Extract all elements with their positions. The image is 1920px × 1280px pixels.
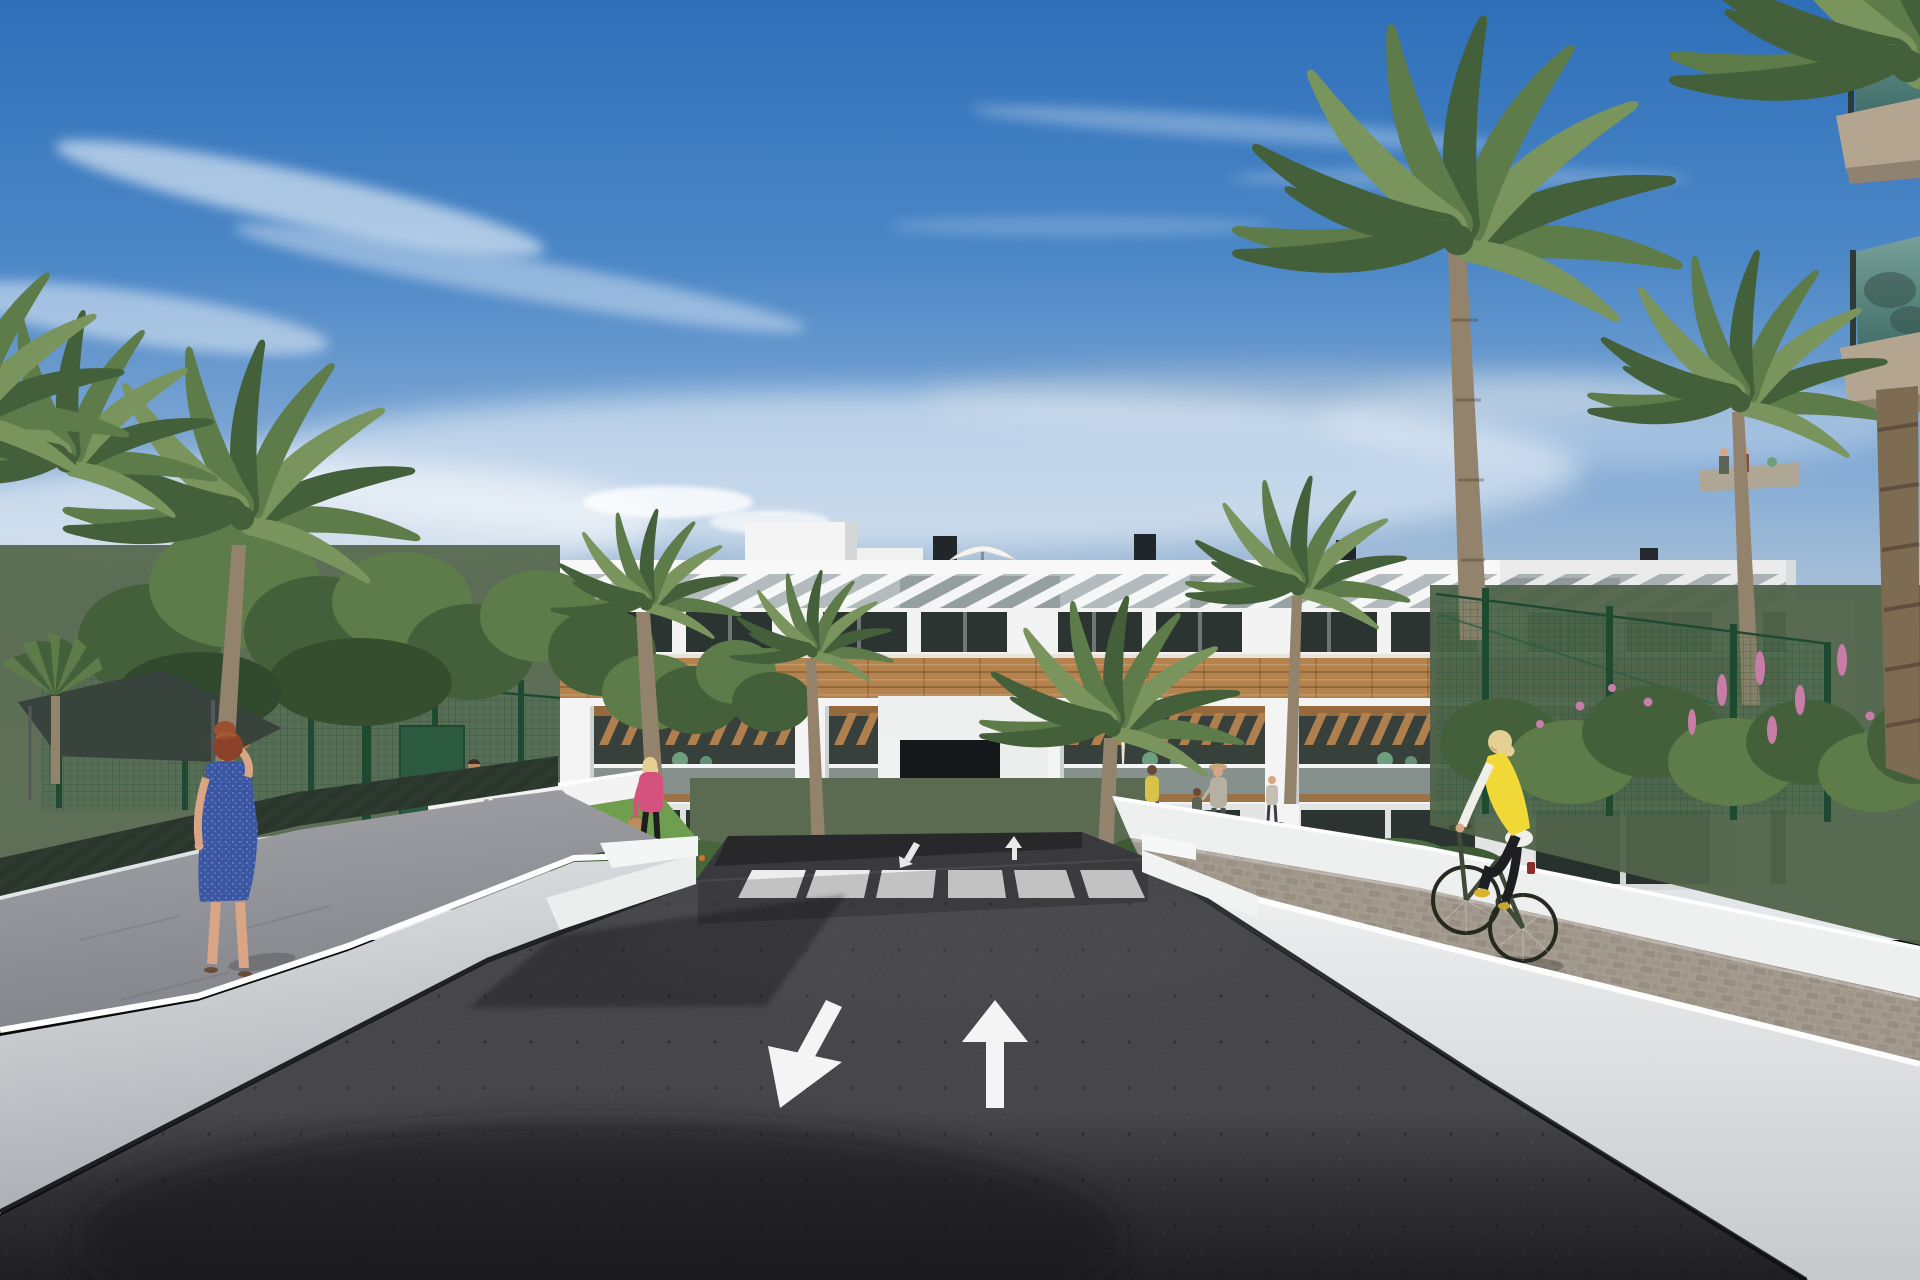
roof-vent (1134, 534, 1156, 560)
rear-light (1527, 862, 1535, 874)
render-stage (0, 0, 1920, 1280)
scene-render (0, 0, 1920, 1280)
